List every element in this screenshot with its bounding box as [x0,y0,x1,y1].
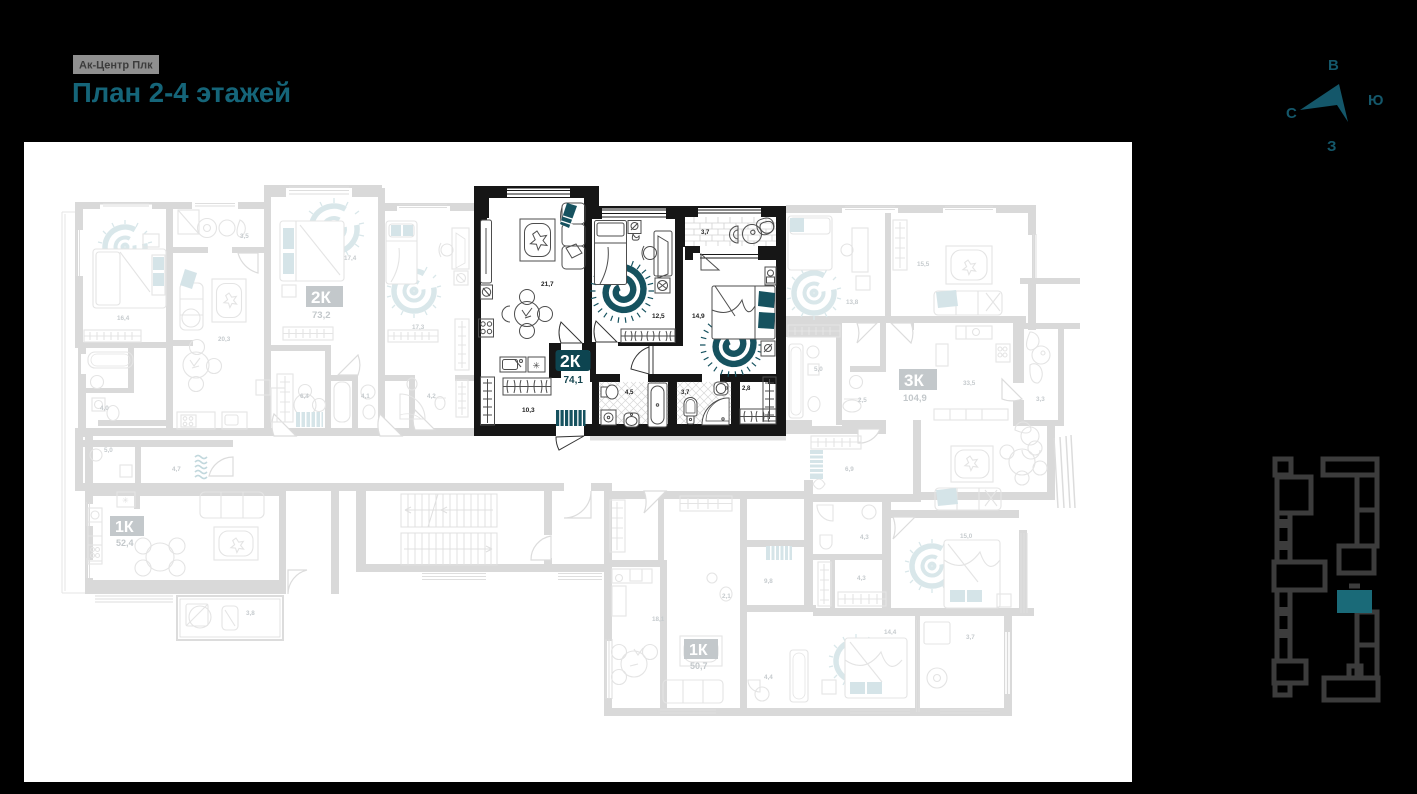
svg-text:9,8: 9,8 [764,578,773,585]
svg-text:50,7: 50,7 [690,661,708,671]
svg-text:104,9: 104,9 [903,393,927,404]
svg-text:4,1: 4,1 [361,393,370,400]
svg-text:4,5: 4,5 [625,390,634,396]
svg-text:План 2-4 этажей: План 2-4 этажей [72,77,291,108]
svg-text:✳: ✳ [533,361,541,371]
svg-text:2,1: 2,1 [722,593,731,600]
svg-text:3К: 3К [904,371,924,390]
svg-text:20,3: 20,3 [218,336,231,343]
svg-text:4,2: 4,2 [427,393,436,400]
svg-text:17,3: 17,3 [412,324,425,331]
svg-text:6,4: 6,4 [300,393,309,400]
svg-text:17,4: 17,4 [344,255,357,262]
svg-text:2,8: 2,8 [742,386,751,392]
svg-text:33,5: 33,5 [963,380,976,387]
svg-text:4,0: 4,0 [100,405,109,412]
svg-text:13,8: 13,8 [846,299,859,306]
svg-text:15,5: 15,5 [917,261,930,268]
svg-text:4,7: 4,7 [172,466,181,473]
svg-text:18,1: 18,1 [652,616,665,623]
svg-text:2К: 2К [560,351,581,371]
svg-text:3,8: 3,8 [246,610,255,617]
svg-text:74,1: 74,1 [564,375,584,386]
svg-text:73,2: 73,2 [312,310,331,321]
svg-text:52,4: 52,4 [116,538,134,548]
svg-text:3,3: 3,3 [1036,396,1045,403]
svg-text:3,7: 3,7 [966,634,975,641]
svg-text:Ю: Ю [1368,92,1383,109]
svg-text:С: С [1286,105,1297,122]
svg-text:4,4: 4,4 [764,674,773,681]
svg-text:5,0: 5,0 [104,447,113,454]
svg-text:1К: 1К [115,519,134,536]
svg-text:15,0: 15,0 [960,533,973,540]
svg-text:3,7: 3,7 [701,230,710,236]
svg-text:12,5: 12,5 [652,313,665,320]
svg-text:2К: 2К [311,288,331,307]
svg-text:14,9: 14,9 [692,313,705,320]
svg-text:5,0: 5,0 [814,366,823,373]
svg-text:10,3: 10,3 [522,407,535,414]
svg-text:В: В [1328,57,1339,74]
svg-text:2,5: 2,5 [858,397,867,404]
svg-text:✳: ✳ [122,496,129,505]
svg-text:21,7: 21,7 [541,281,554,288]
svg-text:6,9: 6,9 [845,466,854,473]
svg-text:1К: 1К [689,642,708,659]
svg-text:16,4: 16,4 [117,315,130,322]
svg-text:3,7: 3,7 [681,390,690,396]
svg-text:14,4: 14,4 [884,629,897,636]
svg-text:3,5: 3,5 [240,233,249,240]
svg-text:4,3: 4,3 [857,575,866,582]
svg-text:4,3: 4,3 [860,534,869,541]
svg-text:З: З [1327,138,1336,155]
svg-text:Ак-Центр Плк: Ак-Центр Плк [79,60,153,72]
